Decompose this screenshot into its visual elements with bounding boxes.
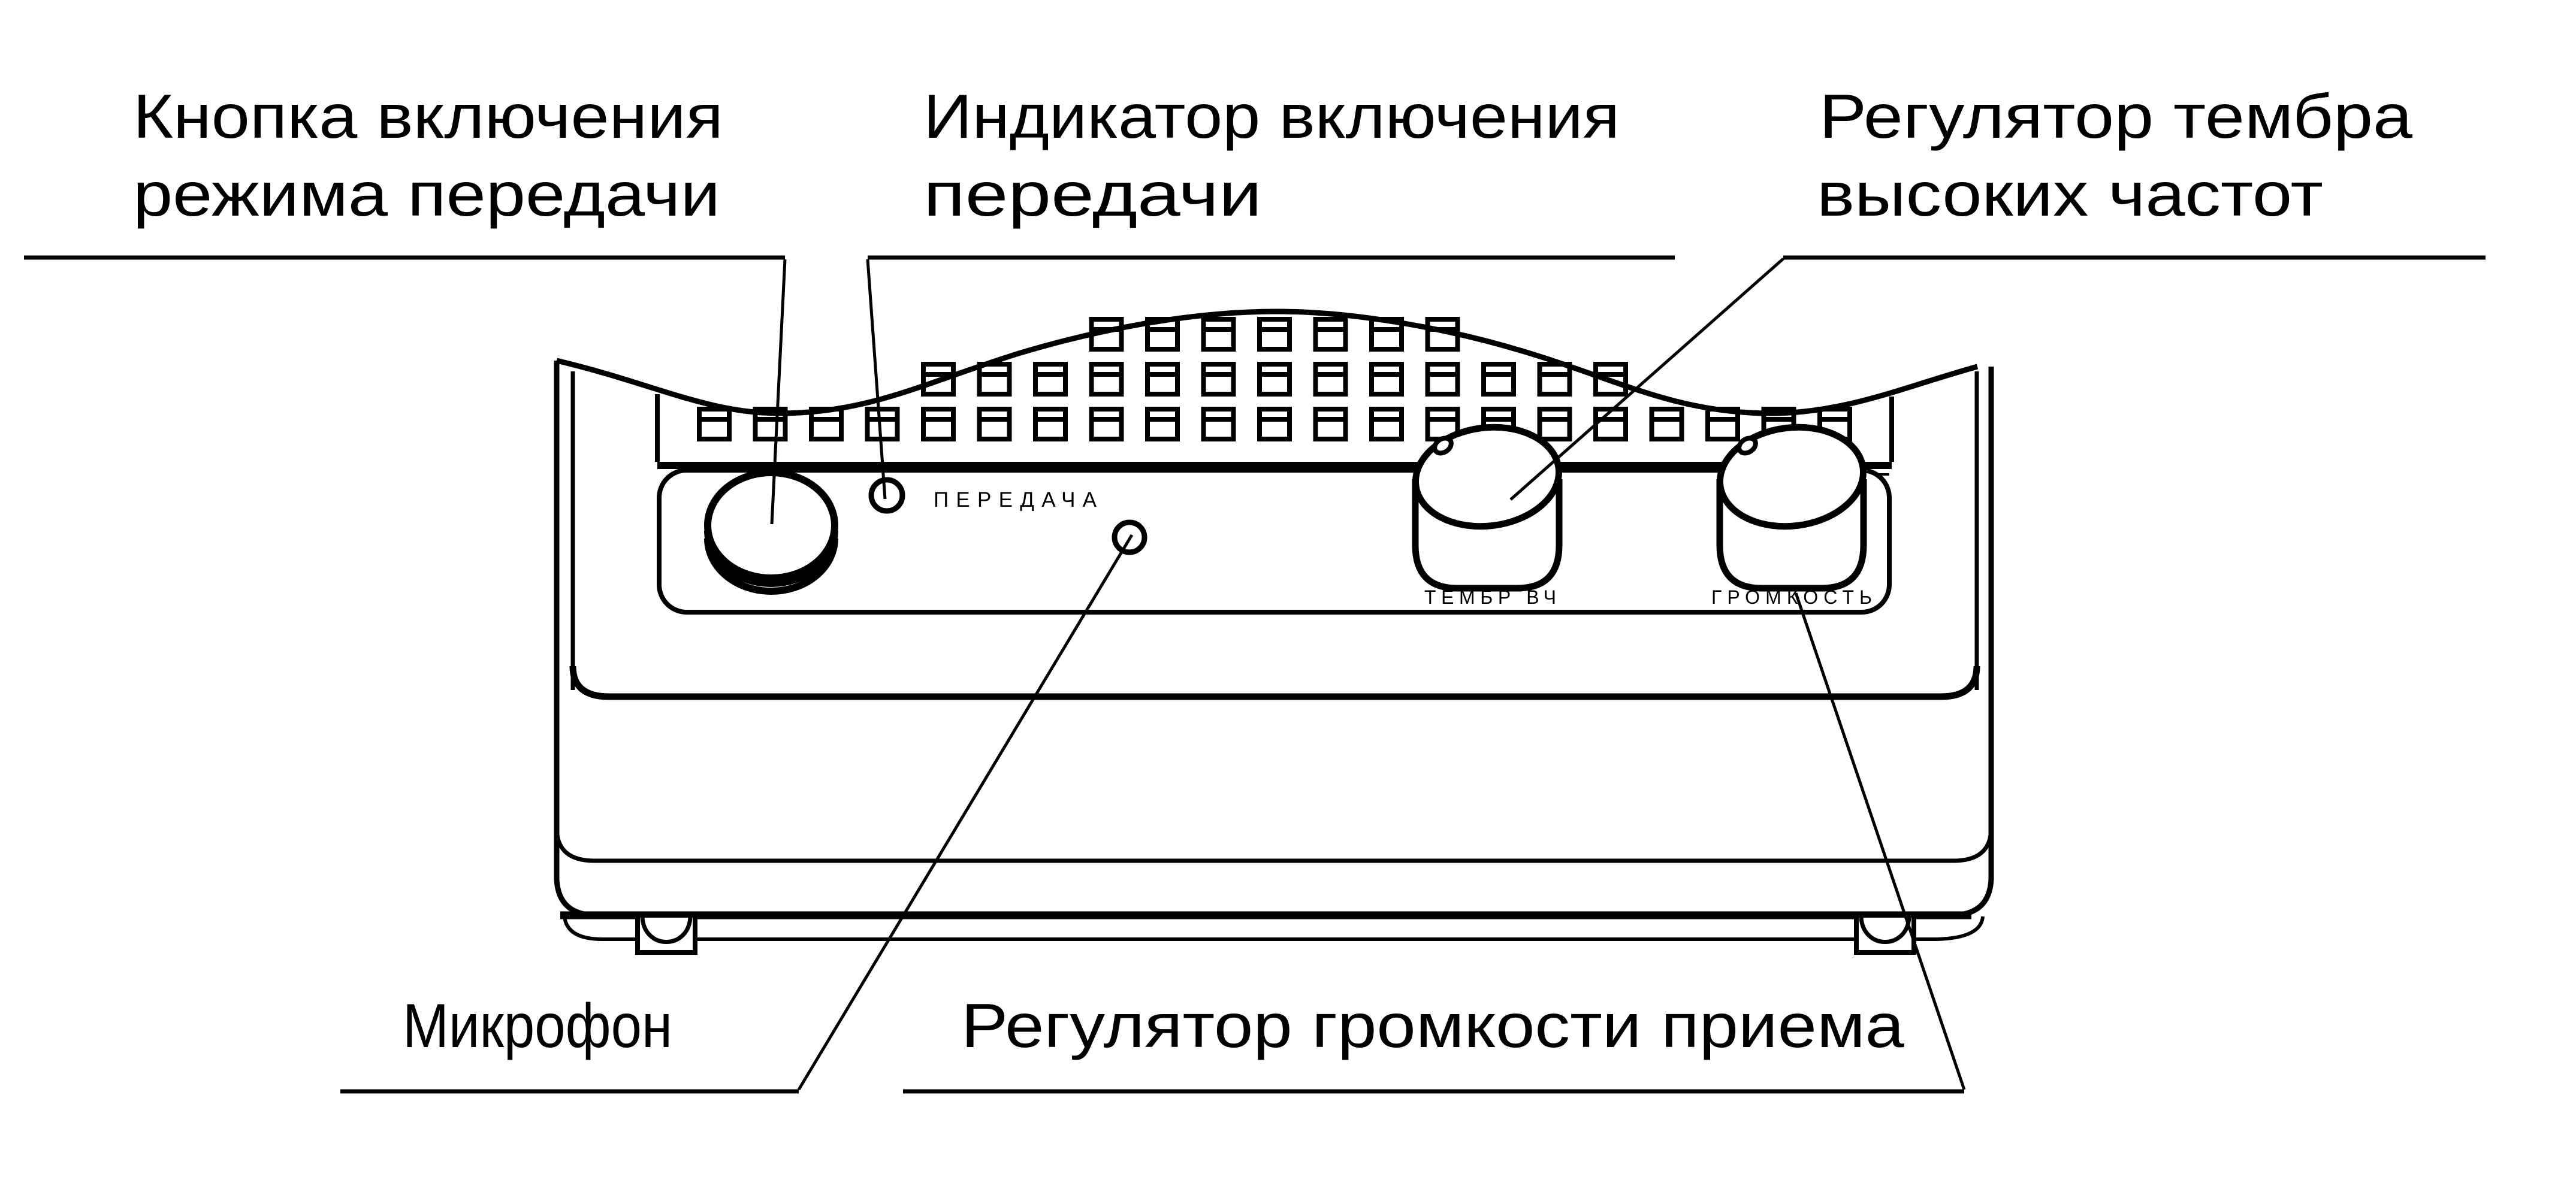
grille-hole — [923, 409, 953, 439]
grille-hole — [1092, 409, 1122, 439]
grille-hole — [1147, 364, 1177, 394]
grille-hole — [1092, 364, 1122, 394]
grille-hole — [1260, 319, 1289, 349]
panel-label-gromkost: ГРОМКОСТЬ — [1711, 586, 1872, 608]
left-foot — [638, 915, 695, 952]
volume-knob — [1714, 419, 1869, 588]
grille-hole — [1316, 409, 1346, 439]
grille-hole — [1372, 409, 1402, 439]
grille-hole — [1260, 409, 1289, 439]
grille-hole — [1428, 364, 1458, 394]
grille-hole — [1652, 409, 1682, 439]
callout-transmit-button-line1: Кнопка включения — [133, 82, 723, 152]
right-foot — [1856, 915, 1914, 952]
panel-label-tembr-vch: ТЕМБР ВЧ — [1424, 586, 1556, 608]
callout-treble-control-line1: Регулятор тембра — [1819, 82, 2412, 152]
callout-transmit-button-line2: режима передачи — [133, 160, 720, 229]
callout-volume-control: Регулятор громкости приема — [961, 991, 1904, 1061]
grille-hole — [1204, 364, 1234, 394]
base-bottom-line — [564, 916, 1983, 939]
grille-hole — [1540, 364, 1570, 394]
grille-hole — [1035, 364, 1065, 394]
front-control-panel — [659, 470, 1889, 612]
callout-transmit-indicator-line1: Индикатор включения — [923, 82, 1620, 152]
grille-hole — [1316, 364, 1346, 394]
callout-transmit-indicator-line2: передачи — [923, 160, 1262, 229]
grille-hole — [1372, 364, 1402, 394]
grille-hole — [980, 409, 1010, 439]
callout-microphone: Микрофон — [403, 991, 672, 1061]
grille-hole — [1204, 319, 1234, 349]
grille-hole — [1035, 409, 1065, 439]
grille-hole — [699, 409, 729, 439]
grille-hole — [1316, 319, 1346, 349]
grille-hole — [868, 409, 898, 439]
lower-shell-line — [557, 830, 1991, 861]
grille-hole — [1204, 409, 1234, 439]
diagram-page: Кнопка включения режима передачи Индикат… — [0, 0, 2576, 1198]
grille-hole — [1596, 409, 1626, 439]
grille-hole — [1540, 409, 1570, 439]
transmit-button — [708, 473, 835, 591]
grille-hole — [980, 364, 1010, 394]
transmit-indicator-lamp — [871, 480, 902, 511]
treble-knob — [1410, 419, 1565, 588]
cabinet-right-edge — [1951, 367, 1991, 915]
cabinet-left-edge — [557, 361, 597, 915]
grille-hole — [1260, 364, 1289, 394]
device-diagram: Кнопка включения режима передачи Индикат… — [0, 0, 2576, 1198]
callout-treble-control-line2: высоких частот — [1817, 160, 2323, 229]
grille-hole — [1147, 409, 1177, 439]
grille-hole — [1484, 364, 1514, 394]
body-ledge-line — [573, 666, 1977, 697]
